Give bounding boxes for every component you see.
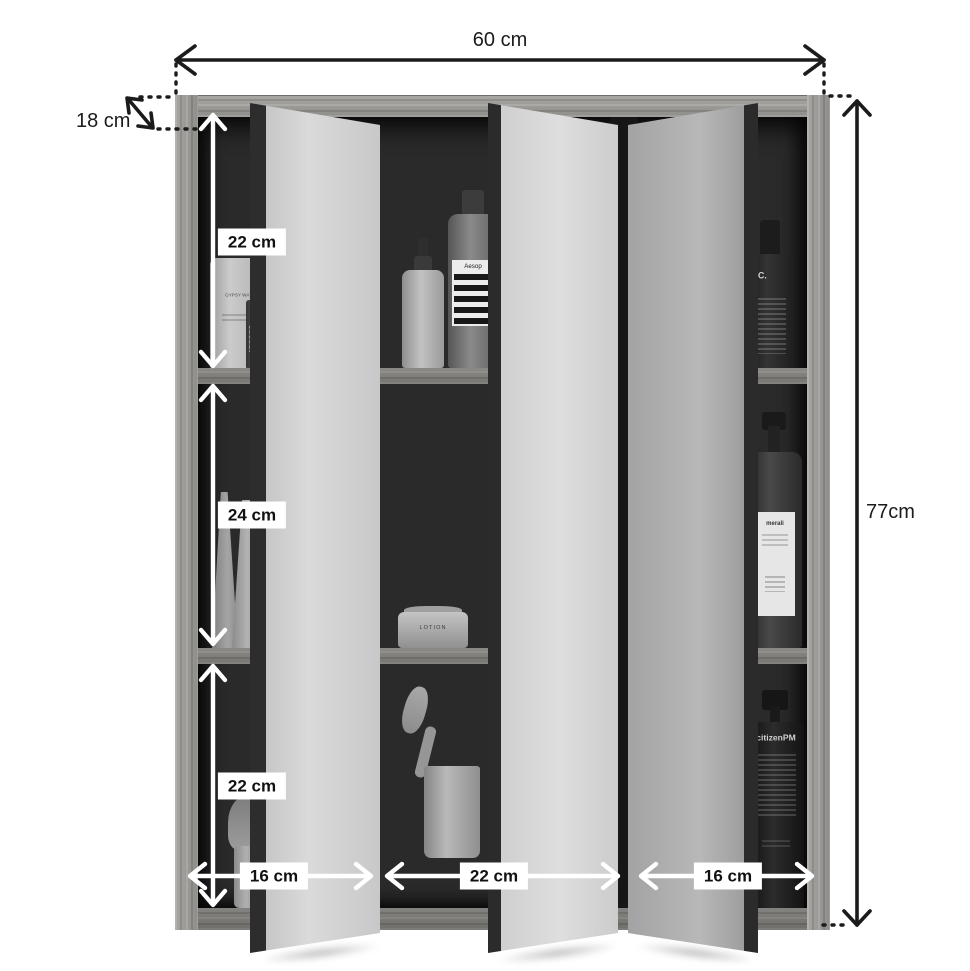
middle-door-width-label: 22 cm bbox=[460, 863, 528, 890]
cabinet-frame-right bbox=[807, 95, 830, 930]
top-compartment-label: 22 cm bbox=[218, 229, 286, 256]
middle-compartment-label: 24 cm bbox=[218, 502, 286, 529]
left-door-width-label: 16 cm bbox=[240, 863, 308, 890]
mirror-cabinet: GYPSY WATER Aesop bbox=[0, 0, 970, 971]
right-door-width-label: 16 cm bbox=[694, 863, 762, 890]
lotion-label: LOTION bbox=[414, 624, 453, 630]
width-dimension-label: 60 cm bbox=[473, 30, 527, 50]
merali-label: merali bbox=[763, 520, 787, 527]
toothbrush-cup bbox=[424, 766, 480, 858]
mirror-door-middle bbox=[488, 95, 618, 953]
shelf-middle-lower bbox=[380, 648, 492, 664]
shelf-right-lower bbox=[753, 648, 809, 664]
depth-dimension-label: 18 cm bbox=[76, 111, 130, 131]
toothbrush bbox=[400, 686, 450, 776]
shelf-middle-upper bbox=[380, 368, 492, 384]
bottom-compartment-label: 22 cm bbox=[218, 773, 286, 800]
height-dimension-label: 77cm bbox=[866, 502, 915, 522]
cabinet-frame-left bbox=[175, 95, 198, 930]
lotion-jar: LOTION bbox=[398, 606, 468, 648]
mirror-door-right bbox=[628, 95, 758, 953]
aesop-label: Aesop bbox=[460, 263, 486, 270]
shelf-right-upper bbox=[753, 368, 809, 384]
pump-bottle-middle bbox=[402, 238, 444, 368]
citizenpm-label: citizenPM bbox=[754, 733, 798, 742]
gypsy-water-label: GYPSY WATER bbox=[225, 293, 251, 298]
mirror-cabinet-dimension-diagram: GYPSY WATER Aesop bbox=[0, 0, 970, 971]
